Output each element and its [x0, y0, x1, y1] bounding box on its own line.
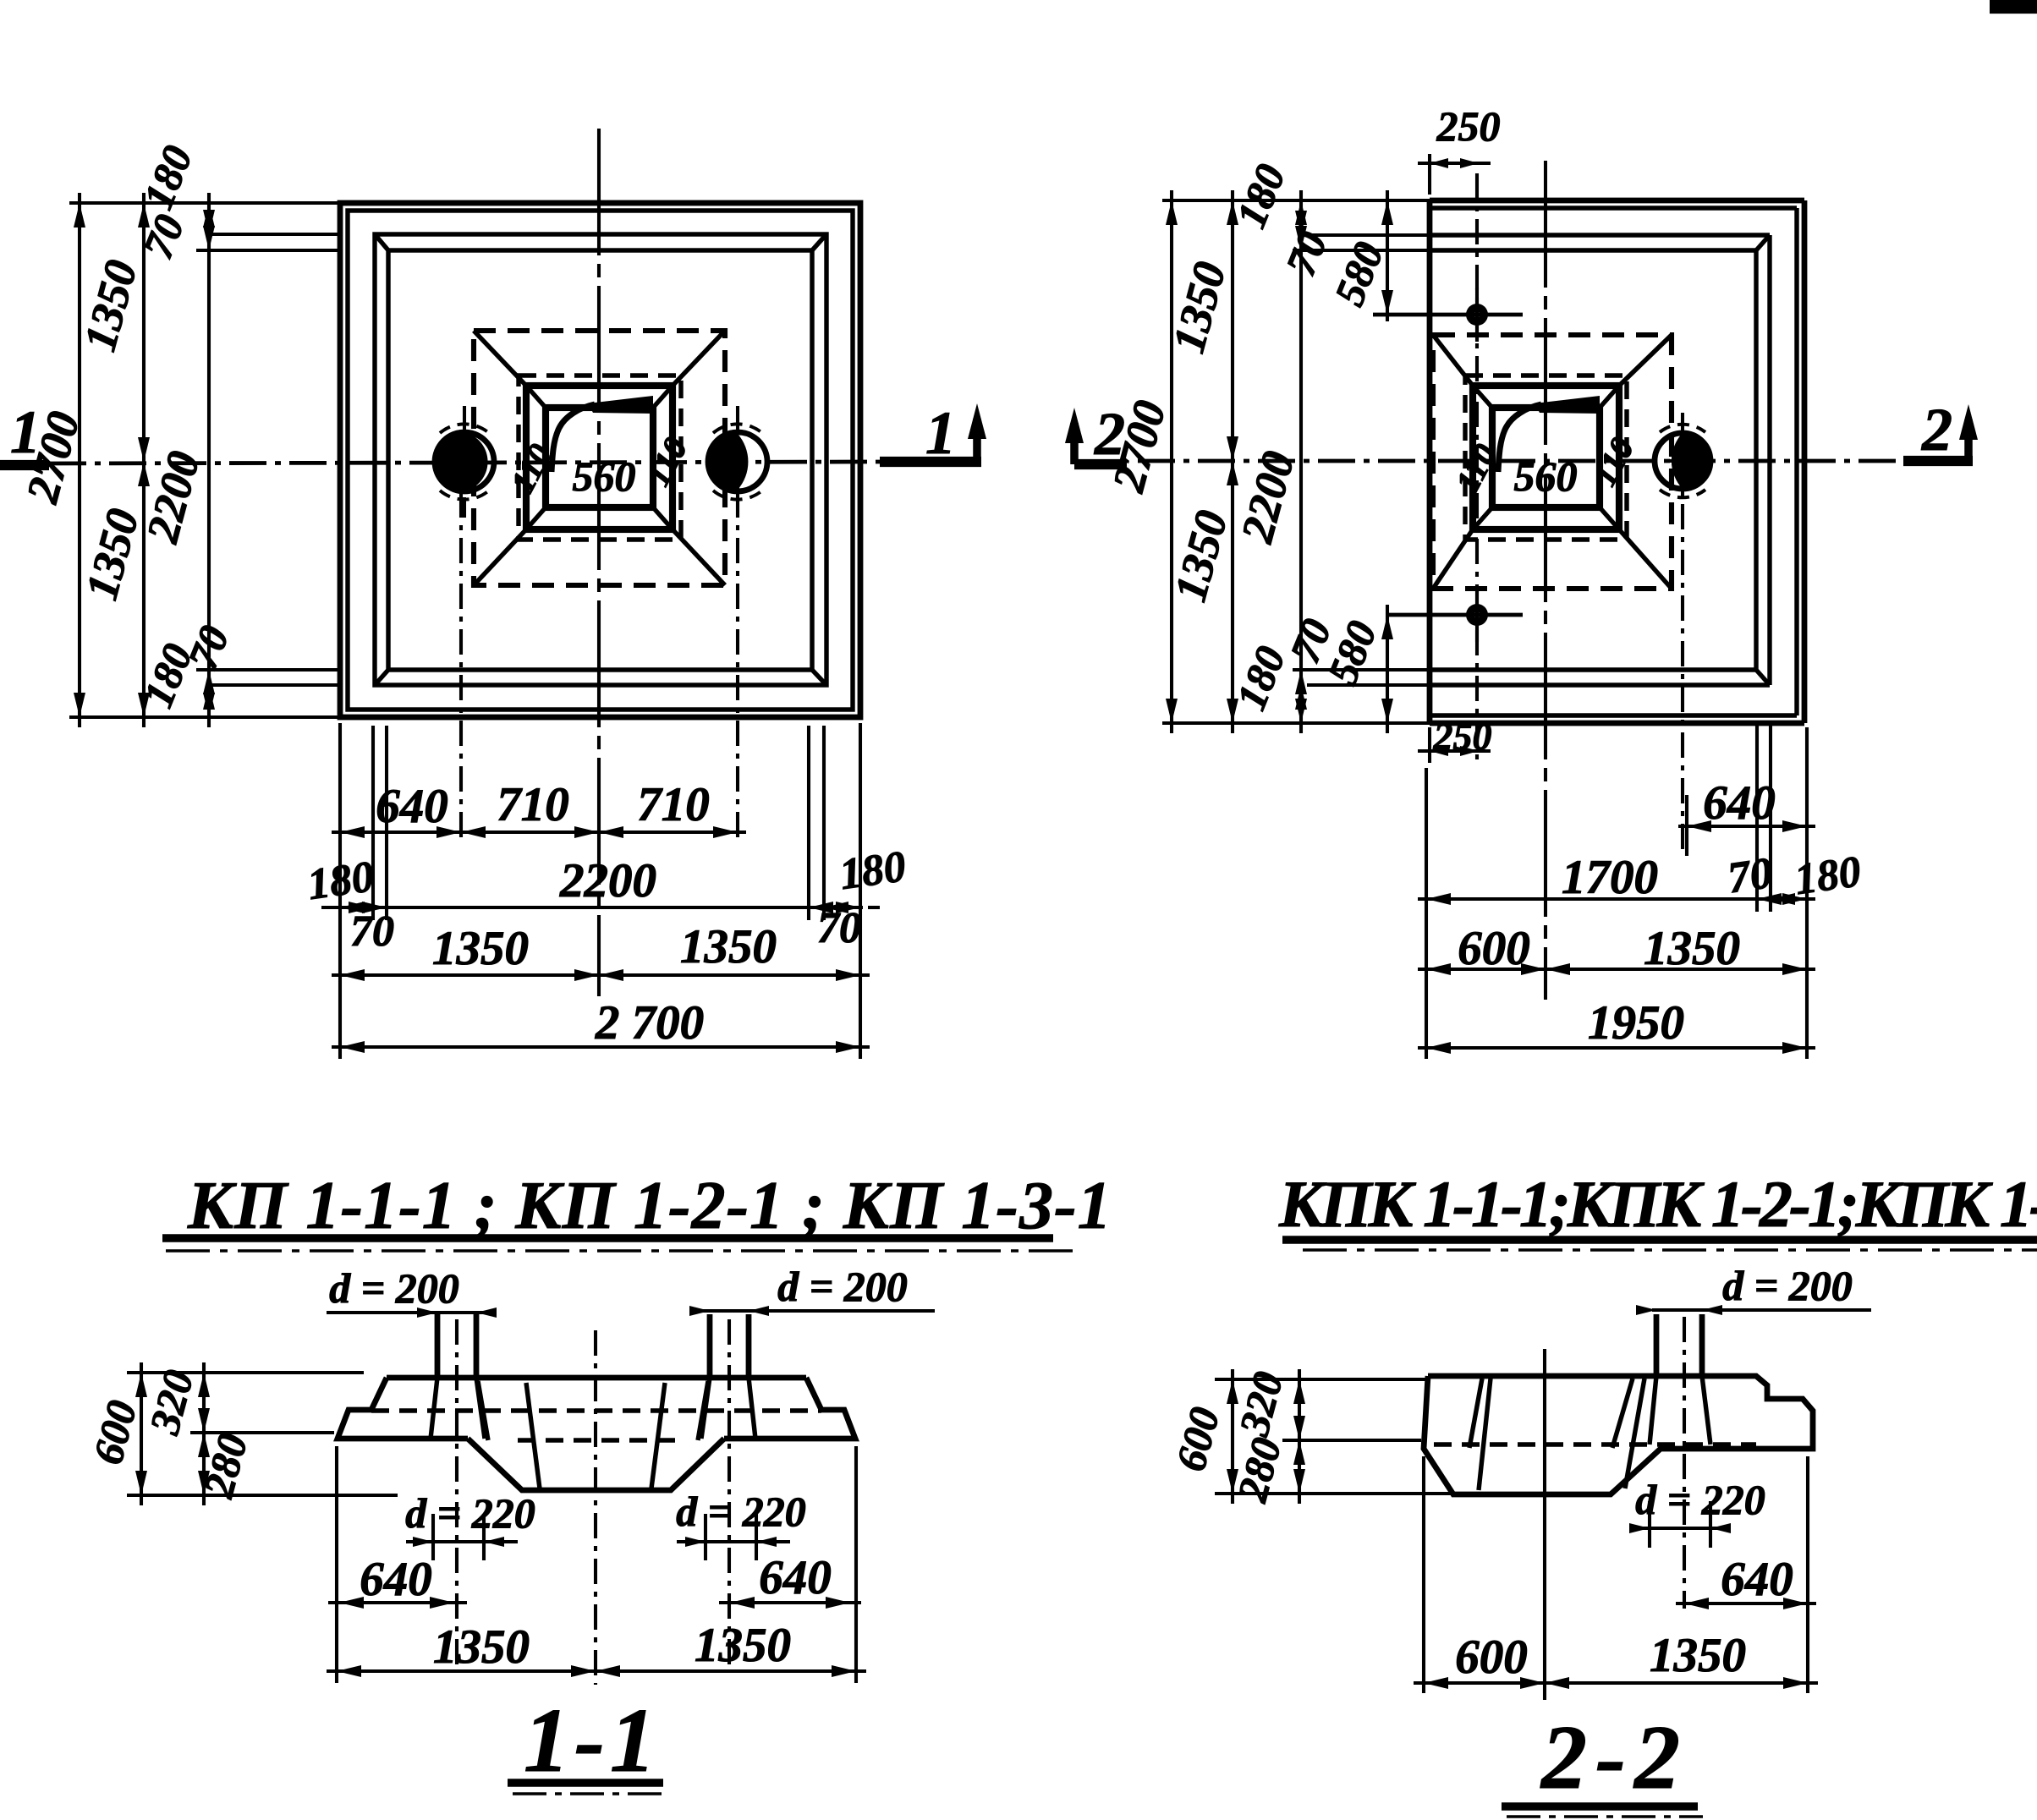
- svg-text:70: 70: [350, 907, 394, 956]
- svg-text:2200: 2200: [559, 854, 656, 907]
- svg-text:d = 220: d = 220: [1635, 1476, 1765, 1523]
- svg-text:600: 600: [1455, 1631, 1528, 1684]
- svg-text:1350: 1350: [432, 922, 529, 975]
- svg-text:710: 710: [497, 778, 569, 831]
- svg-text:1-1: 1-1: [524, 1691, 661, 1791]
- svg-text:1350: 1350: [433, 1620, 530, 1674]
- svg-text:d = 200: d = 200: [777, 1263, 908, 1310]
- svg-text:1950: 1950: [1588, 996, 1684, 1050]
- svg-text:1350: 1350: [680, 920, 777, 973]
- svg-text:2-2: 2-2: [1540, 1708, 1688, 1808]
- svg-text:640: 640: [360, 1553, 432, 1606]
- svg-text:640: 640: [1703, 776, 1776, 830]
- svg-text:180: 180: [305, 852, 376, 909]
- svg-text:640: 640: [376, 780, 448, 833]
- svg-text:1700: 1700: [1562, 851, 1658, 904]
- svg-text:1350: 1350: [695, 1619, 791, 1672]
- svg-text:640: 640: [1721, 1553, 1793, 1606]
- svg-text:70: 70: [1725, 849, 1775, 903]
- svg-text:250: 250: [1436, 102, 1501, 150]
- svg-text:КП 1-1-1 ; КП 1-2-1 ; КП 1-3-: КП 1-1-1 ; КП 1-2-1 ; КП 1-3-1: [187, 1169, 1112, 1243]
- svg-text:d = 220: d = 220: [405, 1489, 535, 1537]
- svg-text:КПК 1-1-1;КПК 1-2-1;КПК 1-3-1: КПК 1-1-1;КПК 1-2-1;КПК 1-3-1: [1278, 1167, 2037, 1241]
- svg-text:180: 180: [837, 842, 909, 899]
- svg-text:560: 560: [573, 452, 636, 500]
- svg-text:1350: 1350: [1644, 922, 1740, 975]
- svg-text:1350: 1350: [1650, 1629, 1746, 1682]
- svg-text:70: 70: [817, 904, 861, 952]
- svg-text:2: 2: [1921, 396, 1952, 463]
- svg-text:640: 640: [759, 1551, 832, 1604]
- svg-text:d = 200: d = 200: [1722, 1262, 1853, 1309]
- svg-text:1: 1: [925, 399, 956, 467]
- svg-text:710: 710: [637, 778, 710, 831]
- svg-text:600: 600: [1458, 922, 1530, 975]
- svg-text:d = 200: d = 200: [329, 1264, 459, 1312]
- svg-text:2 700: 2 700: [595, 996, 704, 1050]
- svg-text:250: 250: [1433, 715, 1492, 758]
- svg-text:d = 220: d = 220: [676, 1488, 806, 1535]
- svg-text:180: 180: [1792, 847, 1864, 904]
